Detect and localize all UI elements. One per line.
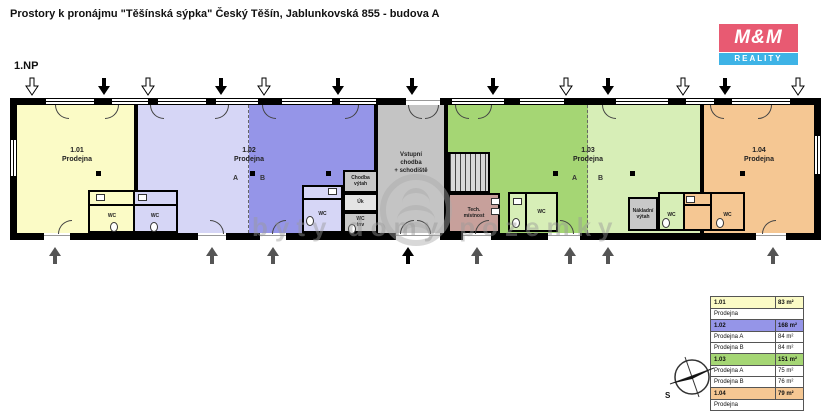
room-102b-letter: B bbox=[260, 175, 265, 182]
legend-row-102: 1.02 168 m² bbox=[711, 320, 803, 332]
legend-row: Prodejna bbox=[711, 400, 803, 410]
room-101-number: 1.01 bbox=[35, 146, 119, 155]
legend-row: Prodejna B 76 m² bbox=[711, 377, 803, 388]
floor-plan: 1.01 Prodejna 1.02 Prodejna A B Vstupní … bbox=[10, 96, 821, 244]
fixture-sink bbox=[491, 198, 500, 205]
corridor-elevator: Chodba výtah bbox=[343, 170, 378, 193]
logo-mm-text: M&M bbox=[719, 24, 798, 52]
compass-north-label: S bbox=[665, 391, 671, 400]
entrance-label: Vstupní chodba + schodiště bbox=[378, 152, 444, 175]
pillar bbox=[553, 171, 558, 176]
fixture-toilet bbox=[348, 224, 356, 234]
arrow-down-outline-icon bbox=[791, 77, 805, 96]
wc-label: WC bbox=[92, 214, 132, 220]
page-title: Prostory k pronájmu "Těšínská sýpka" Čes… bbox=[10, 8, 439, 20]
window bbox=[112, 98, 148, 105]
window bbox=[814, 136, 821, 174]
pillar bbox=[250, 171, 255, 176]
window bbox=[340, 98, 376, 105]
window bbox=[282, 98, 332, 105]
room-104-number: 1.04 bbox=[714, 146, 804, 155]
room-103-label: 1.03 Prodejna bbox=[543, 146, 633, 164]
room-102-number: 1.02 bbox=[204, 146, 294, 155]
fixture-toilet bbox=[716, 218, 724, 228]
room-103a-letter: A bbox=[572, 175, 577, 182]
door-gap bbox=[396, 233, 440, 240]
window bbox=[216, 98, 258, 105]
fixture-sink bbox=[138, 194, 147, 201]
window bbox=[10, 140, 17, 176]
legend-row: Prodejna bbox=[711, 309, 803, 320]
pillar bbox=[326, 171, 331, 176]
divider-103ab bbox=[587, 105, 588, 233]
window bbox=[46, 98, 94, 105]
legend-row-103: 1.03 151 m² bbox=[711, 354, 803, 366]
arrow-up-icon bbox=[205, 246, 219, 265]
arrow-up-icon bbox=[48, 246, 62, 265]
window bbox=[616, 98, 668, 105]
room-102-name: Prodejna bbox=[204, 155, 294, 164]
room-101-name: Prodejna bbox=[35, 155, 119, 164]
arrow-up-icon bbox=[470, 246, 484, 265]
divider-102ab bbox=[248, 105, 249, 233]
pillar bbox=[630, 171, 635, 176]
pillar bbox=[96, 171, 101, 176]
arrow-down-filled-icon bbox=[601, 77, 615, 96]
room-102a-letter: A bbox=[233, 175, 238, 182]
room-102-label: 1.02 Prodejna bbox=[204, 146, 294, 164]
door-gap bbox=[756, 233, 786, 240]
room-101-label: 1.01 Prodejna bbox=[35, 146, 119, 164]
arrow-down-outline-icon bbox=[676, 77, 690, 96]
arrow-up-icon bbox=[601, 246, 615, 265]
legend-row: Prodejna B 84 m² bbox=[711, 343, 803, 354]
arrow-up-icon bbox=[266, 246, 280, 265]
cleaning-room: Úk bbox=[343, 193, 378, 212]
room-104-label: 1.04 Prodejna bbox=[714, 146, 804, 164]
fixture-toilet bbox=[306, 216, 314, 226]
wc-label: WC bbox=[712, 213, 743, 219]
room-103-number: 1.03 bbox=[543, 146, 633, 155]
fixture-toilet bbox=[512, 218, 520, 228]
freight-elevator: Nákladní výtah bbox=[628, 197, 658, 231]
fixture-sink bbox=[328, 188, 337, 195]
door-gap bbox=[44, 233, 70, 240]
room-103-name: Prodejna bbox=[543, 155, 633, 164]
arrow-down-filled-icon bbox=[718, 77, 732, 96]
window bbox=[520, 98, 564, 105]
door-gap bbox=[198, 233, 226, 240]
wc-block-right: WC WC bbox=[658, 192, 745, 231]
arrow-down-outline-icon bbox=[257, 77, 271, 96]
fixture-toilet bbox=[662, 218, 670, 228]
window bbox=[452, 98, 504, 105]
arrow-down-outline-icon bbox=[141, 77, 155, 96]
door-gap bbox=[463, 233, 491, 240]
arrow-up-icon bbox=[766, 246, 780, 265]
fixture-sink bbox=[686, 196, 695, 203]
door-gap bbox=[548, 233, 580, 240]
fixture-toilet bbox=[150, 222, 158, 232]
legend-row: Prodejna A 84 m² bbox=[711, 332, 803, 343]
arrow-down-outline-icon bbox=[559, 77, 573, 96]
window bbox=[732, 98, 790, 105]
floor-plan-page: { "title": "Prostory k pronájmu \"Těšíns… bbox=[0, 0, 832, 415]
window bbox=[158, 98, 206, 105]
entrance-arrow-up-icon bbox=[401, 246, 415, 265]
room-104-name: Prodejna bbox=[714, 155, 804, 164]
room-103b-letter: B bbox=[598, 175, 603, 182]
door-gap bbox=[406, 98, 440, 105]
legend-row: Prodejna A 75 m² bbox=[711, 366, 803, 377]
fixture-sink bbox=[491, 208, 500, 215]
arrow-down-filled-icon bbox=[331, 77, 345, 96]
pillar bbox=[740, 171, 745, 176]
mm-reality-logo: M&M REALITY bbox=[718, 23, 799, 66]
window bbox=[686, 98, 714, 105]
fixture-sink bbox=[513, 198, 522, 205]
arrow-down-filled-icon bbox=[486, 77, 500, 96]
floor-label: 1.NP bbox=[14, 60, 38, 72]
door-gap bbox=[260, 233, 286, 240]
arrow-down-filled-icon bbox=[214, 77, 228, 96]
fixture-sink bbox=[96, 194, 105, 201]
legend-row-104: 1.04 79 m² bbox=[711, 388, 803, 400]
legend-table: 1.01 83 m² Prodejna 1.02 168 m² Prodejna… bbox=[710, 296, 804, 411]
arrow-up-icon bbox=[563, 246, 577, 265]
fixture-toilet bbox=[110, 222, 118, 232]
legend-row-101: 1.01 83 m² bbox=[711, 297, 803, 309]
wc-label: WC bbox=[527, 210, 556, 216]
wc-label: WC bbox=[136, 214, 174, 220]
compass-icon: S bbox=[664, 354, 716, 406]
staircase bbox=[448, 152, 490, 193]
arrow-down-filled-icon bbox=[405, 77, 419, 96]
logo-reality-text: REALITY bbox=[719, 52, 798, 65]
arrow-down-outline-icon bbox=[25, 77, 39, 96]
arrow-down-filled-icon bbox=[97, 77, 111, 96]
